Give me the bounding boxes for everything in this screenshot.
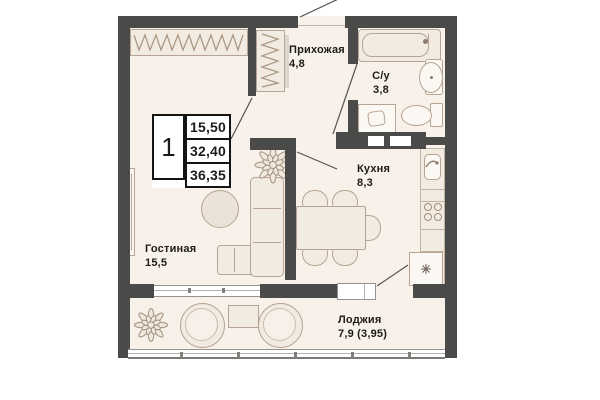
label-hallway: Прихожая 4,8 xyxy=(289,44,345,71)
bathtub xyxy=(358,29,441,62)
washing-machine xyxy=(358,104,396,134)
entrance-door-swing xyxy=(300,0,349,17)
label-kitchen: Кухня 8,3 xyxy=(357,163,390,190)
dining-table xyxy=(296,206,366,250)
vent-shaft-opening xyxy=(368,136,384,146)
wall-top-right xyxy=(345,16,457,28)
closet-hangers-icon xyxy=(131,30,247,54)
label-bathroom: С/у 3,8 xyxy=(366,70,396,97)
room-area: 15,5 xyxy=(145,257,196,271)
wall-vent-connector xyxy=(426,137,445,145)
label-loggia: Лоджия 7,9 (3,95) xyxy=(338,314,387,341)
wall-bottom-left xyxy=(118,284,154,298)
room-area: 3,8 xyxy=(366,84,396,98)
wardrobe-side xyxy=(256,30,285,92)
info-value-2: 32,40 xyxy=(185,138,231,164)
info-value-3: 36,35 xyxy=(185,162,231,188)
loggia-table xyxy=(228,305,259,328)
room-name: Лоджия xyxy=(338,314,387,328)
wall-top-left xyxy=(118,16,298,28)
wall-right xyxy=(445,16,457,300)
stove-burner xyxy=(424,203,432,211)
room-area: 8,3 xyxy=(357,177,390,191)
faucet-icon xyxy=(424,156,440,170)
closet-top xyxy=(130,29,248,56)
room-area: 4,8 xyxy=(289,58,345,72)
floor-plan-canvas: 1 15,50 32,40 36,35 Прихожая 4,8 С/у 3,8… xyxy=(0,0,600,400)
balcony-door xyxy=(337,283,376,300)
sofa-back xyxy=(250,177,284,277)
apartment-info-box: 1 15,50 32,40 36,35 xyxy=(152,114,231,188)
basin-drain xyxy=(430,76,433,79)
room-name: Гостиная xyxy=(145,243,196,257)
wall-bottom-mid xyxy=(260,284,337,298)
room-name: Прихожая xyxy=(289,44,345,58)
label-living: Гостиная 15,5 xyxy=(145,243,196,270)
wall-bottom-right xyxy=(413,284,457,298)
wall-wardrobe-partition xyxy=(248,28,256,96)
room-name: С/у xyxy=(366,70,396,84)
wall-loggia-right xyxy=(445,298,457,358)
stove-burner xyxy=(424,213,432,221)
rug xyxy=(201,190,239,228)
snowflake-icon xyxy=(420,263,432,275)
wall-kitchen-partition xyxy=(285,148,296,280)
entrance-threshold xyxy=(298,25,345,26)
window-living xyxy=(154,285,260,297)
wall-left xyxy=(118,16,130,300)
wall-bathroom-upper xyxy=(348,28,358,64)
loggia-chair xyxy=(258,303,303,348)
wardrobe-hangers-icon xyxy=(257,31,283,90)
stove-burner xyxy=(434,203,442,211)
wall-bathroom-lower xyxy=(348,100,358,136)
bathtub-inner xyxy=(362,33,429,57)
info-value-1: 15,50 xyxy=(185,114,231,140)
loggia-glazing xyxy=(128,349,445,359)
room-count: 1 xyxy=(152,114,185,180)
chair xyxy=(332,190,358,207)
vent-shaft-opening xyxy=(390,136,411,146)
room-area: 7,9 (3,95) xyxy=(338,328,387,342)
loggia-chair xyxy=(180,303,225,348)
toilet-bowl xyxy=(401,105,432,126)
chair xyxy=(302,190,328,207)
plant-icon xyxy=(133,307,169,343)
room-name: Кухня xyxy=(357,163,390,177)
stove-burner xyxy=(434,213,442,221)
